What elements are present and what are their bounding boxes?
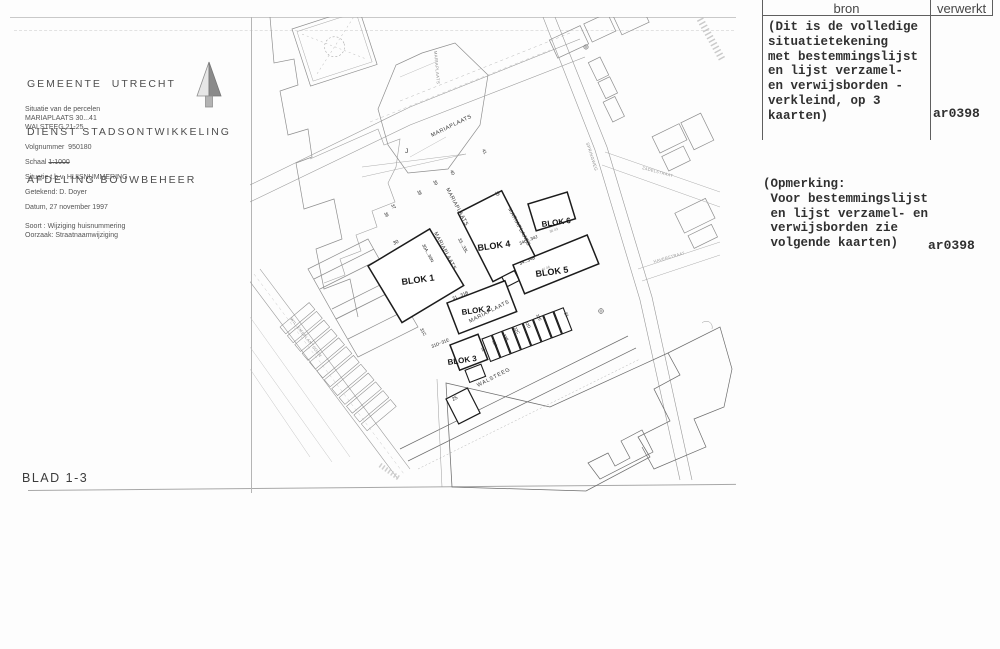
opmerking-note: (Opmerking: Voor bestemmingslijst en lij… <box>763 177 928 251</box>
map-label: WILLEMSPLANTSOEN <box>289 317 323 358</box>
north-arrow-icon <box>194 60 226 110</box>
map-label: 40 <box>449 169 456 176</box>
datum: Datum, 27 november 1997 <box>25 203 128 212</box>
oorzaak: Oorzaak: Straatnaamwijziging <box>25 231 128 240</box>
scanned-situation-drawing: GEMEENTE UTRECHT DIENST STADSONTWIKKELIN… <box>0 0 1000 649</box>
blad-number: BLAD 1-3 <box>22 471 88 485</box>
schaal: Schaal 1:1000 <box>25 158 128 167</box>
map-label: ZADELSTRAAT <box>642 165 674 178</box>
map-label: 39 <box>432 179 439 186</box>
soort: Soort : Wijziging huisnummering <box>25 222 128 231</box>
map-label: J <box>405 148 408 155</box>
map-label: 31C <box>419 327 428 337</box>
map-label: 36 43 <box>549 227 559 234</box>
verwerkt-code-2: ar0398 <box>928 238 975 253</box>
map-label: 36 <box>383 211 390 218</box>
parcel-25-outline <box>446 388 480 424</box>
schaal-label: Schaal <box>25 159 48 166</box>
schaal-value-struck: 1:1000 <box>48 159 69 166</box>
map-label: MARIAPLAATS <box>430 114 473 139</box>
map-label: 30 <box>392 239 400 247</box>
column-header-bron: bron <box>763 1 930 16</box>
table-left-border <box>762 0 763 140</box>
table-middle-border <box>930 0 931 140</box>
drawing-metadata: Situatie van de percelen MARIAPLAATS 30.… <box>25 105 128 240</box>
getekend: Getekend: D. Doyer <box>25 188 128 197</box>
situatie-line: MARIAPLAATS 30...41 <box>25 114 128 123</box>
verwerkt-code-1: ar0398 <box>933 106 980 121</box>
map-label: MARIAPLAATS <box>444 187 469 227</box>
map-label: 31D~31E <box>431 337 450 349</box>
map-label: 33...33L <box>457 237 469 254</box>
map-label: MARIAPLAATS <box>433 51 441 85</box>
situatie-line: WALSTEEG 21-25 <box>25 123 128 132</box>
situatie-tbv: Situatie t.b.v. HUISNUMMERING <box>25 173 128 182</box>
column-header-verwerkt: verwerkt <box>931 1 992 16</box>
map-label: 41 <box>481 148 488 155</box>
situation-map: BLOK 1BLOK 2BLOK 3BLOK 4BLOK 5BLOK 6MARI… <box>250 17 735 495</box>
situatie-line: Situatie van de percelen <box>25 105 128 114</box>
volgnummer: Volgnummer 950180 <box>25 143 128 152</box>
map-label: HAVERSTRAAT <box>653 250 686 264</box>
map-label: 37 <box>390 203 397 210</box>
bron-note: (Dit is de volledige situatietekening me… <box>768 20 918 124</box>
map-label: 38 <box>416 189 423 196</box>
table-right-border <box>992 0 993 16</box>
